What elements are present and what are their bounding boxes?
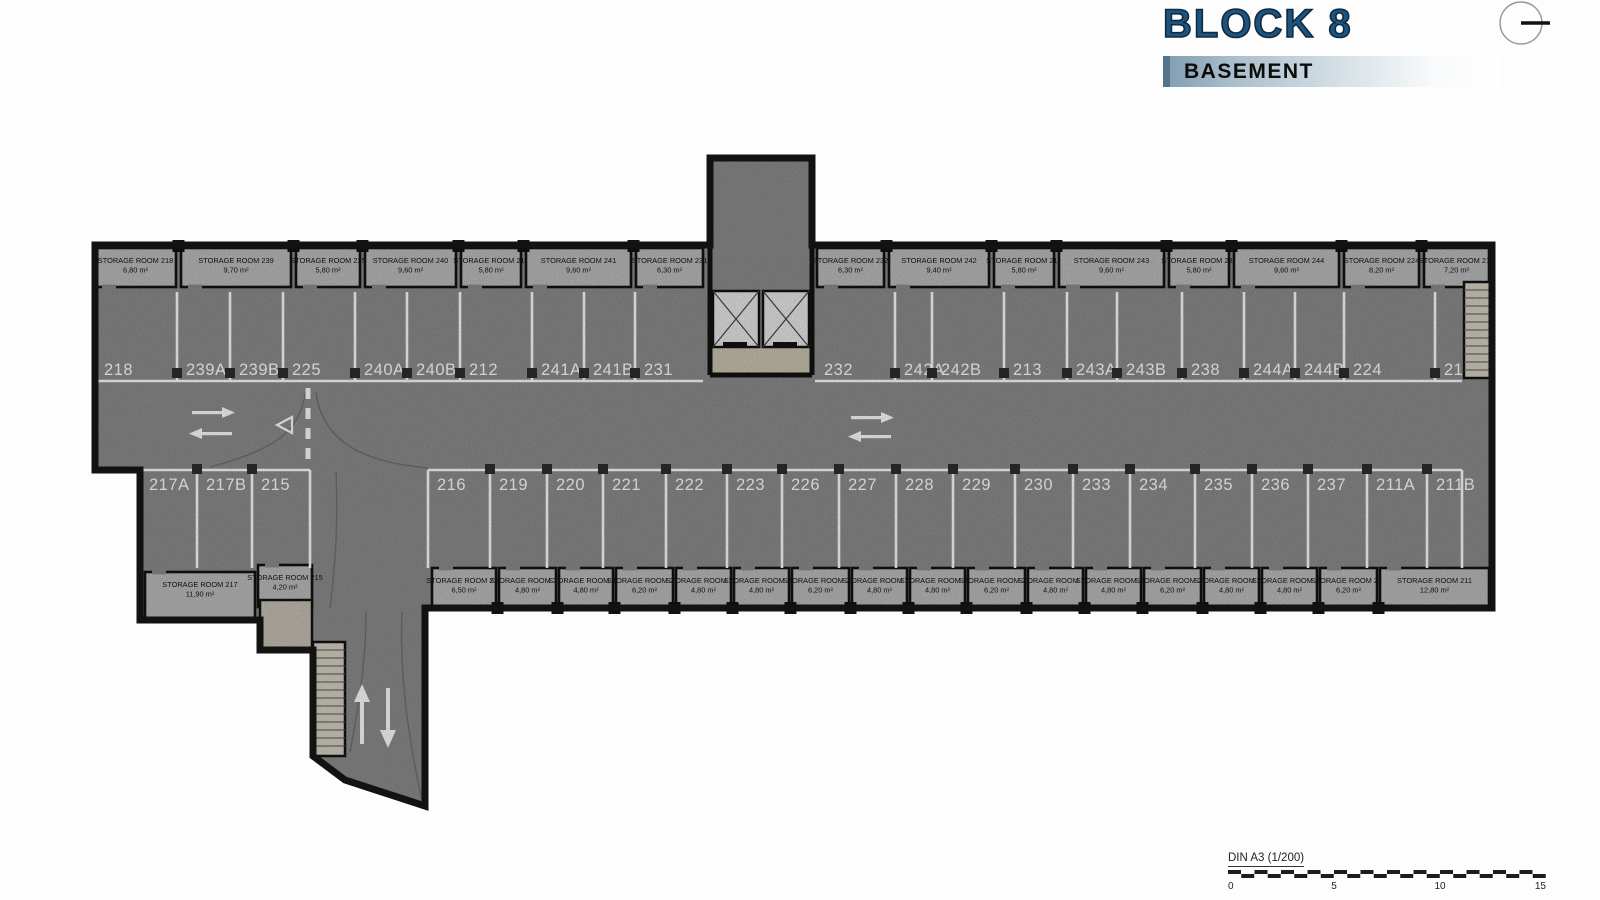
scale-tick: 15 <box>1535 881 1546 892</box>
scale-tick: 0 <box>1228 881 1234 892</box>
floor-name-bar: BASEMENT <box>1163 56 1500 87</box>
basement-floor-plan: STORAGE ROOM 2186,80 m²STORAGE ROOM 2399… <box>0 0 1600 900</box>
concrete-texture <box>90 150 1500 815</box>
scale-bar: DIN A3 (1/200) 051015 <box>1228 848 1546 895</box>
floor-plan-page: STORAGE ROOM 2186,80 m²STORAGE ROOM 2399… <box>0 0 1600 900</box>
scale-tick: 10 <box>1434 881 1445 892</box>
scale-ruler-row <box>1228 874 1546 878</box>
scale-ruler-ticks: 051015 <box>1228 881 1546 895</box>
floor-bar-cap <box>1163 56 1170 87</box>
page-title: BLOCK 8 <box>1163 2 1353 47</box>
north-indicator-icon <box>1494 0 1564 50</box>
scale-label: DIN A3 (1/200) <box>1228 852 1304 867</box>
scale-ruler <box>1228 870 1546 878</box>
floor-label: BASEMENT <box>1170 60 1314 84</box>
scale-tick: 5 <box>1331 881 1337 892</box>
